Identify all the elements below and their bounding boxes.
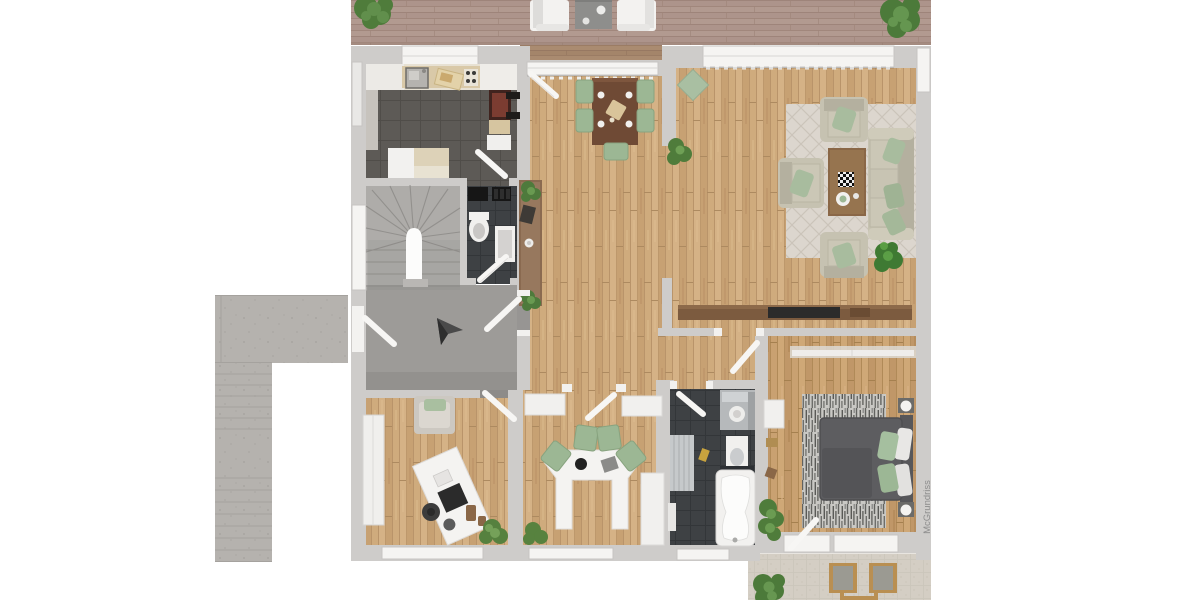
svg-text:McGrundriss: McGrundriss [922,480,933,534]
